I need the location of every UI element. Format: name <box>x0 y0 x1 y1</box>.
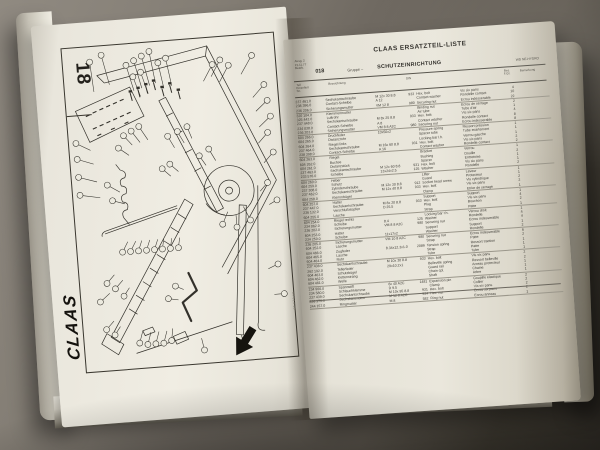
part-callout-circle <box>264 129 270 135</box>
part-callout-circle <box>112 286 118 292</box>
col-header-remark: Bemerkung <box>520 68 536 72</box>
part-callout-circle <box>234 224 240 230</box>
part-callout-circle <box>281 290 287 296</box>
part-callout-circle <box>73 140 79 146</box>
part-callout-circle <box>201 347 207 353</box>
group-name: SCHUTZEINRICHTUNG <box>377 60 442 70</box>
part-callout-circle <box>103 326 109 332</box>
left-page: 18 CLAAS 04 013 18 <box>31 7 318 428</box>
part-callout-circle <box>206 146 212 152</box>
part-callout-circle <box>104 182 110 188</box>
col-header-qty: Bes. F.Gr. <box>504 69 511 76</box>
edition-meta: Ausg. 2 21.11.77 Bearb. <box>295 59 307 70</box>
part-callout-circle <box>275 261 281 267</box>
part-callout-circle <box>274 197 280 203</box>
page-title: CLAAS ERSATZTEIL-LISTE <box>284 34 556 60</box>
part-callout-circle <box>74 156 80 162</box>
col-header-description: Bezeichnung <box>328 81 346 86</box>
meta-line: Bearb. <box>295 66 307 70</box>
col-header-din: DIN <box>406 77 411 81</box>
part-callout-circle <box>161 340 167 346</box>
part-callout-circle <box>151 246 157 252</box>
part-callout-circle <box>167 245 173 251</box>
part-callout-circle <box>146 48 152 54</box>
part-callout-circle <box>119 249 125 255</box>
part-callout-circle <box>217 57 223 63</box>
part-callout-circle <box>209 61 215 67</box>
part-callout-circle <box>112 332 118 338</box>
part-callout-circle <box>135 248 141 254</box>
part-callout-circle <box>225 62 231 68</box>
exploded-parts-diagram <box>60 32 297 372</box>
part-callout-circle <box>267 113 273 119</box>
part-callout-circle <box>127 248 133 254</box>
part-callout-circle <box>97 299 103 305</box>
parts-table: 237 461.0SechskantschraubeM 12x 30 8.893… <box>295 83 563 310</box>
part-callout-circle <box>219 221 225 227</box>
machine-reference: WD NE-HYDRO <box>516 56 539 62</box>
part-callout-circle <box>164 133 170 139</box>
part-callout-circle <box>143 247 149 253</box>
part-callout-circle <box>137 340 143 346</box>
part-callout-circle <box>155 60 161 66</box>
part-callout-circle <box>86 59 92 65</box>
part-callout-circle <box>137 69 143 75</box>
part-callout-circle <box>145 341 151 347</box>
part-callout-circle <box>121 293 127 299</box>
part-callout-circle <box>270 149 276 155</box>
part-callout-circle <box>138 53 144 59</box>
col-header-part-no: Teil Einzelteil Nr. <box>296 83 309 94</box>
photo-of-open-parts-catalog: 18 CLAAS 04 013 18 <box>0 0 600 450</box>
part-callout-circle <box>123 62 129 68</box>
part-callout-circle <box>136 123 142 129</box>
part-callout-circle <box>75 174 81 180</box>
group-number: 018 <box>315 68 324 75</box>
part-callout-circle <box>167 161 173 167</box>
part-callout-circle <box>264 97 270 103</box>
part-callout-circle <box>175 245 181 251</box>
part-callout-circle <box>120 132 126 138</box>
part-callout-circle <box>128 128 134 134</box>
part-callout-circle <box>196 153 202 159</box>
part-callout-circle <box>172 283 178 289</box>
part-callout-circle <box>98 52 104 58</box>
direction-arrow-icon <box>228 323 262 361</box>
part-callout-circle <box>261 81 267 87</box>
part-callout-circle <box>115 145 121 151</box>
part-callout-circle <box>104 280 110 286</box>
part-callout-circle <box>159 246 165 252</box>
part-callout-circle <box>77 192 83 198</box>
part-callout-circle <box>130 74 136 80</box>
part-callout-circle <box>153 341 159 347</box>
part-callout-circle <box>168 337 174 343</box>
part-callout-circle <box>248 52 254 58</box>
part-callout-circle <box>264 179 270 185</box>
part-callout-circle <box>247 217 253 223</box>
part-callout-circle <box>174 128 180 134</box>
part-callout-circle <box>184 123 190 129</box>
part-callout-circle <box>130 57 136 63</box>
right-page: CLAAS ERSATZTEIL-LISTE Ausg. 2 21.11.77 … <box>283 21 581 419</box>
part-callout-circle <box>109 198 115 204</box>
part-callout-circle <box>165 295 171 301</box>
group-label: Gruppe – <box>347 67 363 72</box>
part-callout-circle <box>159 166 165 172</box>
part-callout-circle <box>162 55 168 61</box>
